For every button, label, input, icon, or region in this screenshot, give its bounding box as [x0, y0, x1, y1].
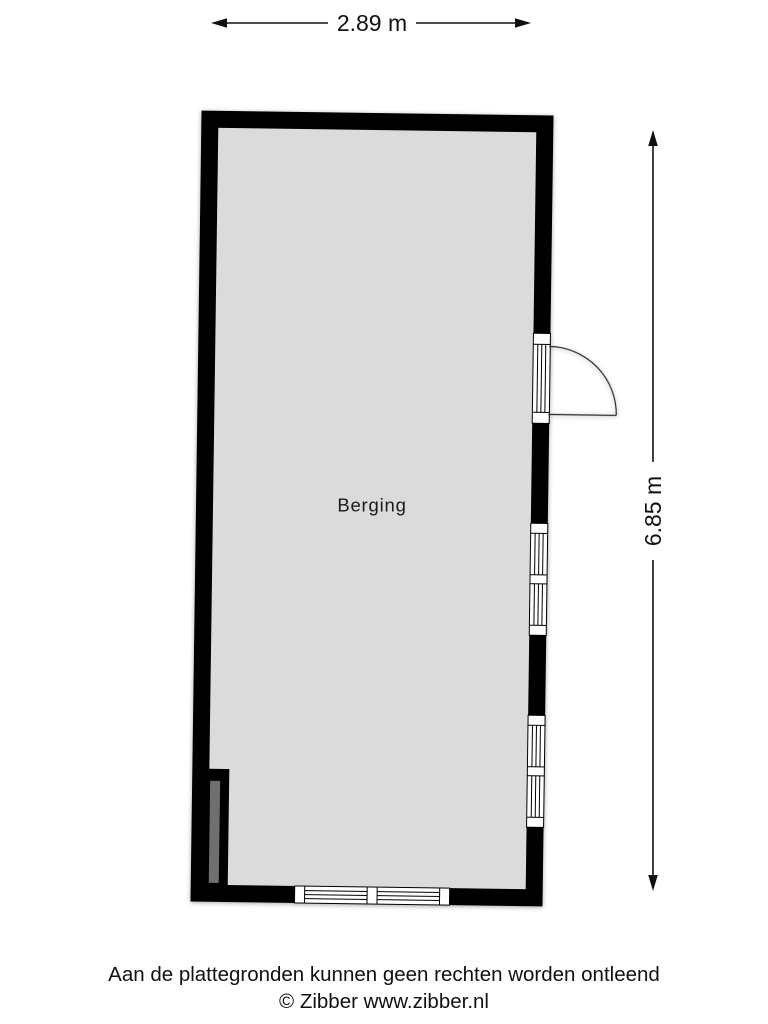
window-frame-end — [439, 888, 449, 905]
arrow-left-icon — [211, 18, 227, 28]
door-leaf — [548, 414, 616, 415]
window-frame-mullion — [367, 887, 377, 904]
footer: Aan de plattegronden kunnen geen rechten… — [0, 961, 768, 1015]
window-frame-end — [528, 715, 545, 725]
dimension-height-label: 6.85 m — [640, 476, 666, 546]
door-frame-end — [533, 333, 550, 344]
window-frame-end — [294, 886, 304, 903]
arrow-down-icon — [648, 875, 658, 891]
window-right-upper — [529, 523, 548, 635]
window-frame-mullion — [527, 767, 544, 776]
footer-disclaimer: Aan de plattegronden kunnen geen rechten… — [0, 961, 768, 988]
window-frame-end — [529, 625, 546, 635]
window-right-lower — [527, 715, 546, 827]
floorplan-canvas: 2.89 m 6.85 m — [0, 0, 768, 1024]
floorplan-page: 2.89 m 6.85 m — [0, 0, 768, 1024]
door — [532, 333, 617, 424]
window-frame-mullion — [530, 575, 547, 584]
window-bottom — [294, 886, 449, 905]
dimension-width: 2.89 m — [211, 7, 531, 39]
window-frame-end — [531, 523, 548, 533]
footer-copyright: © Zibber www.zibber.nl — [0, 988, 768, 1015]
door-swing-arc — [548, 346, 617, 415]
dimension-width-label: 2.89 m — [337, 10, 407, 36]
arrow-up-icon — [648, 130, 658, 146]
dimension-height: 6.85 m — [636, 130, 670, 891]
door-frame-end — [532, 412, 549, 423]
window-frame-end — [527, 817, 544, 827]
arrow-right-icon — [515, 18, 531, 28]
room-label: Berging — [337, 495, 406, 516]
pillar-fill — [209, 781, 220, 883]
